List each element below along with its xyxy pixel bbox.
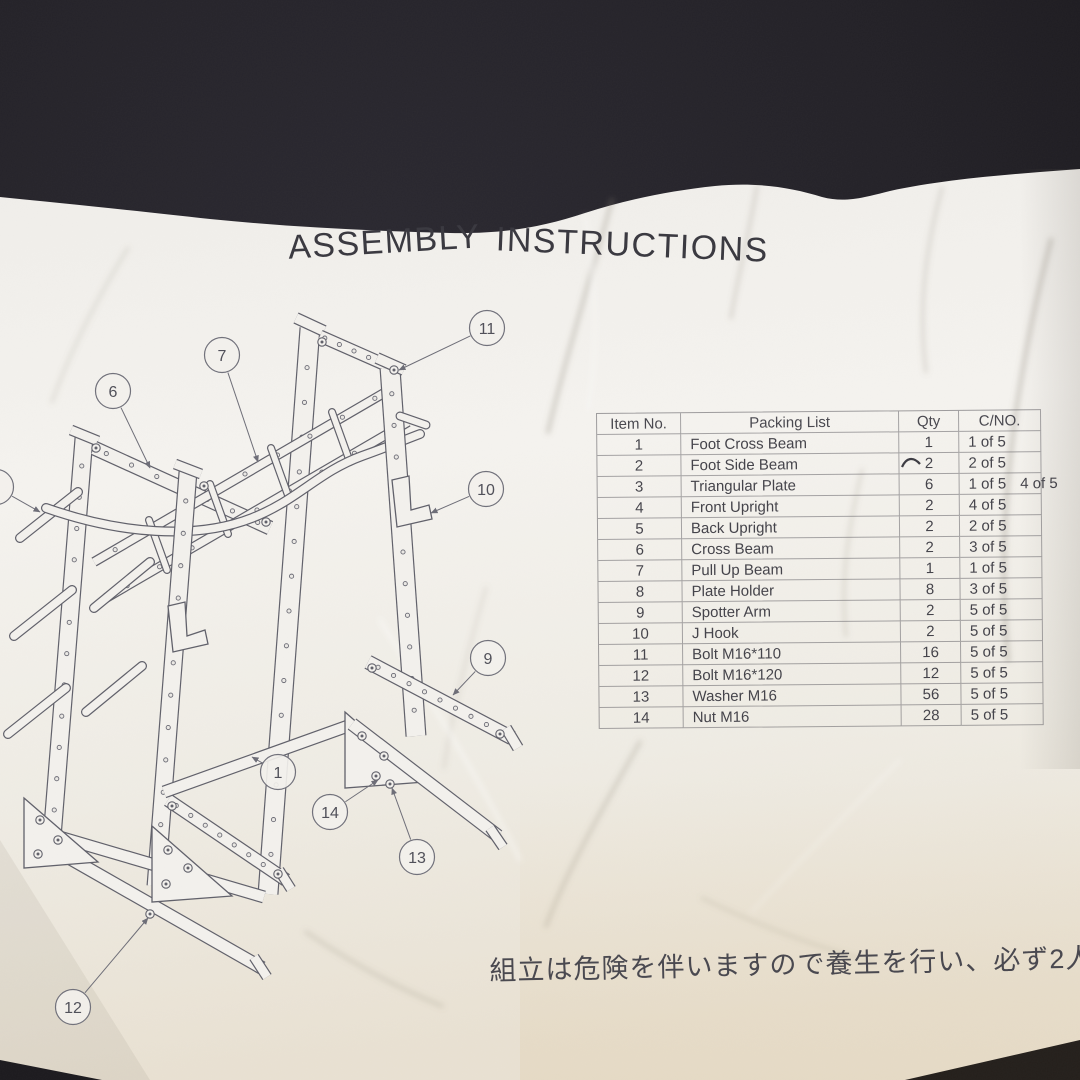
table-cell-name: Triangular Plate <box>682 474 900 497</box>
table-cell-cno: 2 of 5 <box>960 515 1042 537</box>
table-cell-qty: 2 <box>900 495 960 517</box>
table-header-cell: C/NO. <box>959 410 1041 432</box>
table-cell-qty: 2 <box>900 537 960 559</box>
table-cell-qty: 2 <box>901 621 961 643</box>
cno-value: 1 of 5 <box>969 559 1007 576</box>
cno-value: 1 of 5 <box>969 475 1007 492</box>
table-cell-cno: 1 of 5 <box>959 431 1041 453</box>
table-cell-qty: 2 <box>899 453 959 475</box>
table-cell-cno: 5 of 5 <box>961 641 1043 663</box>
table-cell-name: Pull Up Beam <box>682 558 900 581</box>
table-cell-name: Spotter Arm <box>683 600 901 623</box>
table-cell-item: 9 <box>599 602 683 624</box>
cno-value: 5 of 5 <box>970 685 1008 702</box>
table-cell-qty: 1 <box>899 432 959 454</box>
table-cell-item: 10 <box>599 623 683 645</box>
table-cell-name: J Hook <box>683 621 901 644</box>
table-cell-name: Plate Holder <box>682 579 900 602</box>
table-cell-qty: 2 <box>900 516 960 538</box>
table-cell-qty: 8 <box>900 579 960 601</box>
table-cell-qty: 28 <box>902 705 962 727</box>
table-cell-cno: 5 of 5 <box>961 599 1043 621</box>
table-cell-item: 13 <box>599 686 683 708</box>
table-cell-cno: 4 of 5 <box>960 494 1042 516</box>
table-cell-qty: 6 <box>900 474 960 496</box>
table-cell-name: Washer M16 <box>683 684 901 707</box>
table-cell-name: Back Upright <box>682 516 900 539</box>
table-cell-item: 14 <box>600 707 684 729</box>
table-cell-item: 7 <box>598 560 682 582</box>
cno-value: 3 of 5 <box>969 538 1007 555</box>
table-cell-name: Foot Side Beam <box>681 453 899 476</box>
table-cell-name: Foot Cross Beam <box>681 432 899 455</box>
page-title: ASSEMBLY INSTRUCTIONS <box>288 223 769 262</box>
table-cell-item: 4 <box>598 497 682 519</box>
cno-value: 5 of 5 <box>970 664 1008 681</box>
cno-value: 5 of 5 <box>970 643 1008 660</box>
table-cell-qty: 12 <box>901 663 961 685</box>
table-cell-item: 2 <box>597 455 681 477</box>
table-header-cell: Qty <box>899 411 959 433</box>
table-cell-name: Nut M16 <box>684 705 902 728</box>
cno-value: 1 of 5 <box>968 433 1006 450</box>
cno-value: 3 of 5 <box>969 580 1007 597</box>
table-cell-cno: 5 of 5 <box>961 662 1043 684</box>
table-cell-cno: 3 of 5 <box>960 578 1042 600</box>
table-cell-cno: 1 of 54 of 5 <box>960 473 1042 495</box>
table-cell-item: 8 <box>598 581 682 603</box>
table-cell-cno: 3 of 5 <box>960 536 1042 558</box>
table-header-cell: Packing List <box>681 411 899 434</box>
parts-table: Item No.Packing ListQtyC/NO.1Foot Cross … <box>596 409 1044 729</box>
table-cell-cno: 5 of 5 <box>961 620 1043 642</box>
table-cell-item: 12 <box>599 665 683 687</box>
table-header-cell: Item No. <box>597 413 681 435</box>
table-cell-name: Cross Beam <box>682 537 900 560</box>
table-cell-name: Bolt M16*120 <box>683 663 901 686</box>
table-cell-cno: 1 of 5 <box>960 557 1042 579</box>
cno-value: 2 of 5 <box>969 517 1007 534</box>
cno-value: 5 of 5 <box>970 601 1008 618</box>
table-cell-item: 1 <box>597 434 681 456</box>
table-cell-item: 5 <box>598 518 682 540</box>
table-cell-cno: 2 of 5 <box>959 452 1041 474</box>
table-cell-name: Bolt M16*110 <box>683 642 901 665</box>
cno-value: 4 of 5 <box>969 496 1007 513</box>
table-cell-item: 11 <box>599 644 683 666</box>
cno-extra-value: 4 of 5 <box>1020 474 1058 491</box>
table-cell-qty: 56 <box>901 684 961 706</box>
cno-value: 5 of 5 <box>970 622 1008 639</box>
table-cell-qty: 1 <box>900 558 960 580</box>
table-cell-cno: 5 of 5 <box>961 683 1043 705</box>
table-cell-cno: 5 of 5 <box>962 704 1044 726</box>
table-cell-item: 6 <box>598 539 682 561</box>
cno-value: 2 of 5 <box>968 454 1006 471</box>
assembly-instructions-photo: 876111091141312 ASSEMBLY INSTRUCTIONS It… <box>0 0 1080 1080</box>
table-cell-qty: 2 <box>901 600 961 622</box>
title-word-1: ASSEMBLY <box>287 217 482 267</box>
cno-value: 5 of 5 <box>971 706 1009 723</box>
table-cell-qty: 16 <box>901 642 961 664</box>
table-cell-name: Front Upright <box>682 495 900 518</box>
table-cell-item: 3 <box>598 476 682 498</box>
